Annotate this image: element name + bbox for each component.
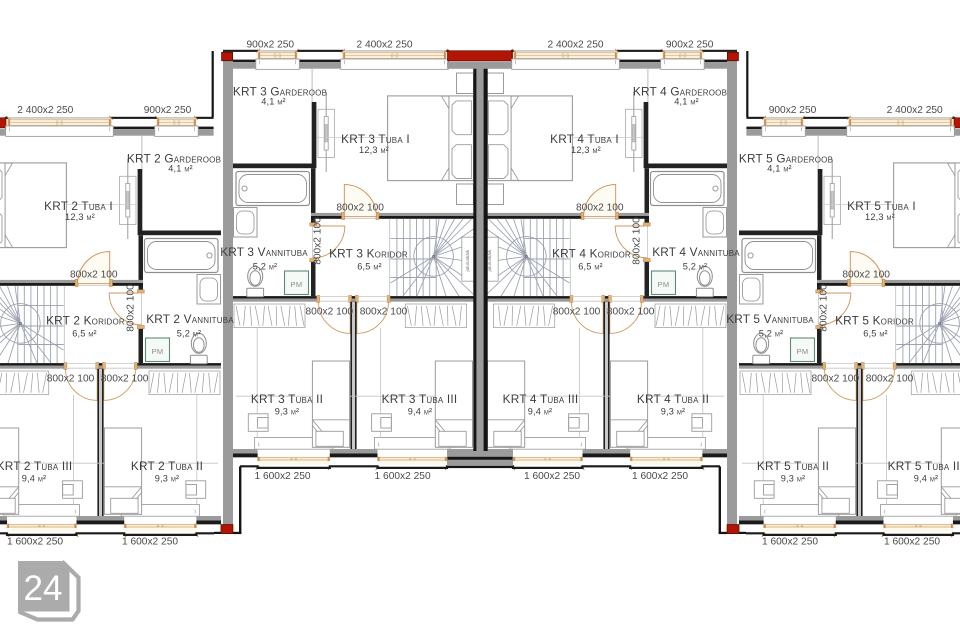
svg-text:9,3 m²: 9,3 m² <box>275 407 300 417</box>
svg-text:800x2 100: 800x2 100 <box>101 373 149 384</box>
svg-text:4,1 m²: 4,1 m² <box>767 164 792 174</box>
svg-text:800x2 100: 800x2 100 <box>576 203 624 214</box>
svg-text:24: 24 <box>24 569 63 608</box>
svg-text:KRT 4 Tuba III: KRT 4 Tuba III <box>503 392 579 406</box>
svg-text:PM: PM <box>797 347 809 356</box>
svg-text:4,1 m²: 4,1 m² <box>674 97 699 107</box>
svg-text:1 600x2 250: 1 600x2 250 <box>7 537 63 548</box>
svg-text:800x2 100: 800x2 100 <box>306 306 354 317</box>
svg-text:900x2 250: 900x2 250 <box>144 105 192 116</box>
svg-text:PM: PM <box>152 347 164 356</box>
svg-text:KRT 4 Vannituba: KRT 4 Vannituba <box>652 245 740 259</box>
svg-text:5,2 m²: 5,2 m² <box>177 329 202 339</box>
svg-text:900x2 250: 900x2 250 <box>247 39 295 50</box>
svg-text:5,2 m²: 5,2 m² <box>253 262 278 272</box>
svg-text:KRT 3 Koridor: KRT 3 Koridor <box>329 247 408 261</box>
svg-text:9,3 m²: 9,3 m² <box>661 407 686 417</box>
svg-text:800x2 100: 800x2 100 <box>70 270 118 281</box>
svg-text:KRT 3 Tuba III: KRT 3 Tuba III <box>382 392 458 406</box>
svg-text:KRT 5 Vannituba: KRT 5 Vannituba <box>726 312 814 326</box>
svg-text:KRT 2 Tuba II: KRT 2 Tuba II <box>131 459 203 473</box>
svg-text:12,3 m²: 12,3 m² <box>571 145 601 155</box>
svg-text:800x2 100: 800x2 100 <box>866 373 914 384</box>
svg-text:2 400x2 250: 2 400x2 250 <box>17 105 73 116</box>
svg-text:KRT 2 Tuba I: KRT 2 Tuba I <box>44 199 113 213</box>
svg-text:KRT 5 Koridor: KRT 5 Koridor <box>835 314 914 328</box>
svg-text:9,4 m²: 9,4 m² <box>408 407 433 417</box>
svg-text:800x2 100: 800x2 100 <box>360 306 408 317</box>
svg-text:jalutuskäik: jalutuskäik <box>465 249 470 272</box>
svg-text:KRT 4 Tuba I: KRT 4 Tuba I <box>550 132 619 146</box>
svg-text:800x2 100: 800x2 100 <box>819 284 830 332</box>
svg-text:5,2 m²: 5,2 m² <box>759 329 784 339</box>
svg-text:9,4 m²: 9,4 m² <box>914 474 939 484</box>
svg-text:9,4 m²: 9,4 m² <box>528 407 553 417</box>
svg-text:KRT 3 Tuba II: KRT 3 Tuba II <box>251 392 323 406</box>
svg-text:12,3 m²: 12,3 m² <box>359 145 389 155</box>
svg-text:2 400x2 250: 2 400x2 250 <box>887 105 943 116</box>
svg-text:1 600x2 250: 1 600x2 250 <box>375 471 431 482</box>
svg-text:KRT 5 Tuba I: KRT 5 Tuba I <box>847 199 916 213</box>
svg-text:800x2 100: 800x2 100 <box>553 306 601 317</box>
svg-text:4,1 m²: 4,1 m² <box>168 164 193 174</box>
svg-text:2 400x2 250: 2 400x2 250 <box>547 39 603 50</box>
svg-text:9,3 m²: 9,3 m² <box>781 474 806 484</box>
svg-text:900x2 250: 900x2 250 <box>666 39 714 50</box>
svg-text:4,1 m²: 4,1 m² <box>261 97 286 107</box>
svg-text:12,3 m²: 12,3 m² <box>65 212 95 222</box>
svg-text:2 400x2 250: 2 400x2 250 <box>356 39 412 50</box>
svg-text:800x2 100: 800x2 100 <box>607 306 655 317</box>
svg-text:KRT 3 Vannituba: KRT 3 Vannituba <box>220 245 308 259</box>
svg-text:PM: PM <box>291 280 303 289</box>
svg-text:9,3 m²: 9,3 m² <box>155 474 180 484</box>
svg-text:KRT 3 Tuba I: KRT 3 Tuba I <box>341 132 410 146</box>
svg-text:KRT 2 Koridor: KRT 2 Koridor <box>46 314 125 328</box>
svg-text:800x2 100: 800x2 100 <box>631 217 642 265</box>
svg-text:KRT 4 Tuba II: KRT 4 Tuba II <box>637 392 709 406</box>
svg-text:6,5 m²: 6,5 m² <box>863 329 888 339</box>
svg-text:9,4 m²: 9,4 m² <box>22 474 47 484</box>
svg-text:KRT 5 Tuba II: KRT 5 Tuba II <box>757 459 829 473</box>
svg-text:KRT 2 Tuba III: KRT 2 Tuba III <box>0 459 72 473</box>
svg-text:6,5 m²: 6,5 m² <box>72 329 97 339</box>
svg-text:1 600x2 250: 1 600x2 250 <box>254 471 310 482</box>
svg-text:800x2 100: 800x2 100 <box>842 270 890 281</box>
svg-text:KRT 2 Vannituba: KRT 2 Vannituba <box>146 312 234 326</box>
svg-text:KRT 5 Tuba III: KRT 5 Tuba III <box>888 459 960 473</box>
svg-text:900x2 250: 900x2 250 <box>769 105 817 116</box>
svg-text:12,3 m²: 12,3 m² <box>865 212 895 222</box>
svg-text:1 600x2 250: 1 600x2 250 <box>122 537 178 548</box>
svg-text:1 600x2 250: 1 600x2 250 <box>524 471 580 482</box>
svg-text:jalutuskäik: jalutuskäik <box>487 249 492 272</box>
svg-text:1 600x2 250: 1 600x2 250 <box>762 537 818 548</box>
svg-text:6,5 m²: 6,5 m² <box>578 262 603 272</box>
svg-text:6,5 m²: 6,5 m² <box>357 262 382 272</box>
svg-text:800x2 100: 800x2 100 <box>313 217 324 265</box>
svg-text:KRT 4 Koridor: KRT 4 Koridor <box>552 247 631 261</box>
svg-text:5,2 m²: 5,2 m² <box>683 262 708 272</box>
svg-text:800x2 100: 800x2 100 <box>47 373 95 384</box>
svg-text:800x2 100: 800x2 100 <box>125 284 136 332</box>
svg-text:PM: PM <box>658 280 670 289</box>
svg-text:1 600x2 250: 1 600x2 250 <box>632 471 688 482</box>
svg-text:800x2 100: 800x2 100 <box>812 373 860 384</box>
svg-text:1 600x2 250: 1 600x2 250 <box>884 537 940 548</box>
svg-text:800x2 100: 800x2 100 <box>336 203 384 214</box>
